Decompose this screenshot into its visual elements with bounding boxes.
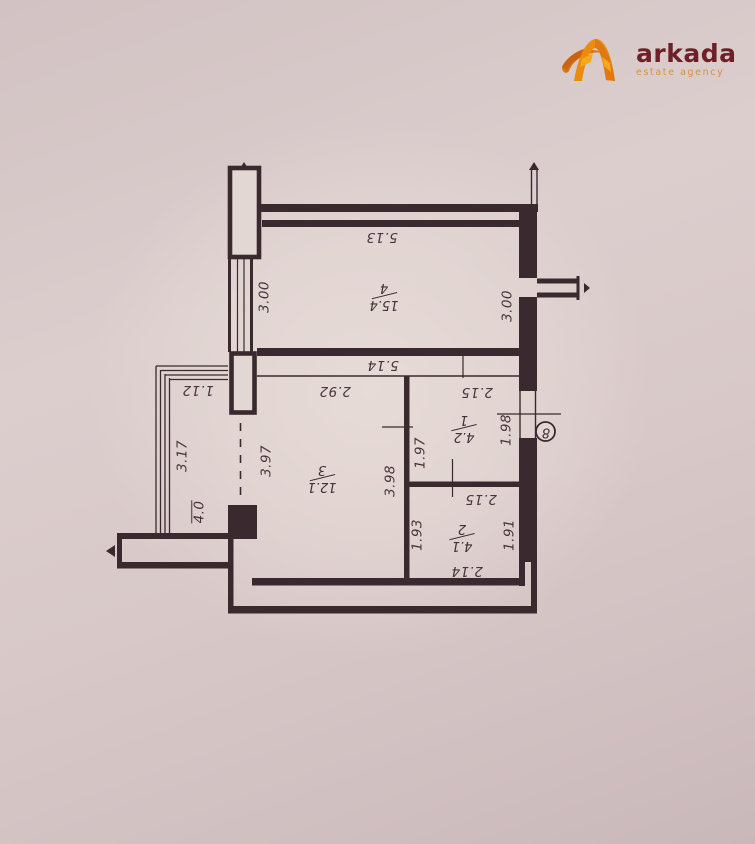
room-3-label: 12.1 3 bbox=[308, 463, 337, 493]
wall-bottom-inner bbox=[252, 578, 524, 586]
dim-room1-left: 1.97 bbox=[414, 437, 428, 469]
dim-room4-left: 3.00 bbox=[258, 281, 272, 313]
room-1-area: 4.2 bbox=[454, 429, 475, 444]
wall-right-inner-split bbox=[519, 560, 525, 586]
dim-room2-right: 1.91 bbox=[503, 519, 517, 551]
dim-room3-left: 3.97 bbox=[260, 445, 274, 477]
floor-plan-scan: 5.13 5.14 3.00 3.00 2.92 3.97 3.98 2.15 … bbox=[0, 0, 755, 844]
wall-pier-top-left bbox=[230, 168, 259, 257]
dim-balcony-area: 4.0 bbox=[191, 501, 207, 524]
room-3-area: 12.1 bbox=[308, 479, 337, 494]
wall-bottom-outer bbox=[228, 606, 537, 614]
dim-room4-bottom: 5.14 bbox=[367, 357, 399, 371]
wall-top-inner bbox=[262, 220, 522, 227]
wall-room4-bottom bbox=[257, 348, 519, 356]
axis-arrow-stub-right bbox=[584, 283, 590, 293]
wall-top-outer bbox=[258, 204, 538, 212]
wall-pier-mid-left bbox=[232, 354, 255, 413]
logo-text: arkada estate agency bbox=[636, 41, 736, 78]
plan-canvas bbox=[0, 0, 755, 844]
dim-room3-right: 3.98 bbox=[384, 465, 398, 497]
axis-marker-number: 8 bbox=[541, 425, 549, 438]
room-4-label: 15.4 4 bbox=[370, 281, 399, 311]
dim-room3-top: 2.92 bbox=[319, 383, 351, 397]
dim-room4-right: 3.00 bbox=[501, 290, 515, 322]
wall-right-upper bbox=[519, 211, 537, 278]
room-4-number: 4 bbox=[380, 281, 388, 296]
room-4-area: 15.4 bbox=[370, 297, 399, 312]
logo-mark-icon bbox=[558, 33, 630, 85]
logo-tagline: estate agency bbox=[636, 67, 736, 78]
axis-arrow-top-right bbox=[529, 162, 539, 170]
wall-stub-left-top bbox=[117, 533, 230, 539]
room-3-number: 3 bbox=[318, 463, 326, 478]
wall-right-lower bbox=[519, 438, 537, 562]
dim-balcony-side: 3.17 bbox=[176, 440, 190, 472]
dim-entry: 1.98 bbox=[500, 414, 514, 446]
dim-room1-top: 2.15 bbox=[461, 384, 493, 398]
wall-stub-left-bottom bbox=[117, 562, 230, 569]
dim-room2-left: 1.93 bbox=[411, 519, 425, 551]
wall-stub-left-cap bbox=[117, 533, 122, 569]
room-1-label: 4.2 1 bbox=[451, 413, 477, 443]
logo-brand: arkada bbox=[636, 41, 736, 66]
room-2-label: 4.1 2 bbox=[449, 522, 475, 552]
wall-left-connector bbox=[228, 539, 234, 612]
axis-arrow-stub-left bbox=[106, 545, 115, 557]
wall-room1-room2-divider bbox=[409, 482, 519, 488]
dim-room2-top: 2.15 bbox=[465, 491, 497, 505]
agency-logo: arkada estate agency bbox=[558, 30, 743, 88]
dim-bottom: 2.14 bbox=[451, 563, 483, 577]
wall-right-outer-split bbox=[531, 560, 537, 612]
wall-pier-lower-left bbox=[228, 505, 257, 539]
dim-balcony-top: 1.12 bbox=[182, 382, 214, 396]
dim-room4-top: 5.13 bbox=[366, 229, 398, 243]
room-2-area: 4.1 bbox=[452, 538, 473, 553]
wall-right-mid bbox=[519, 297, 537, 391]
